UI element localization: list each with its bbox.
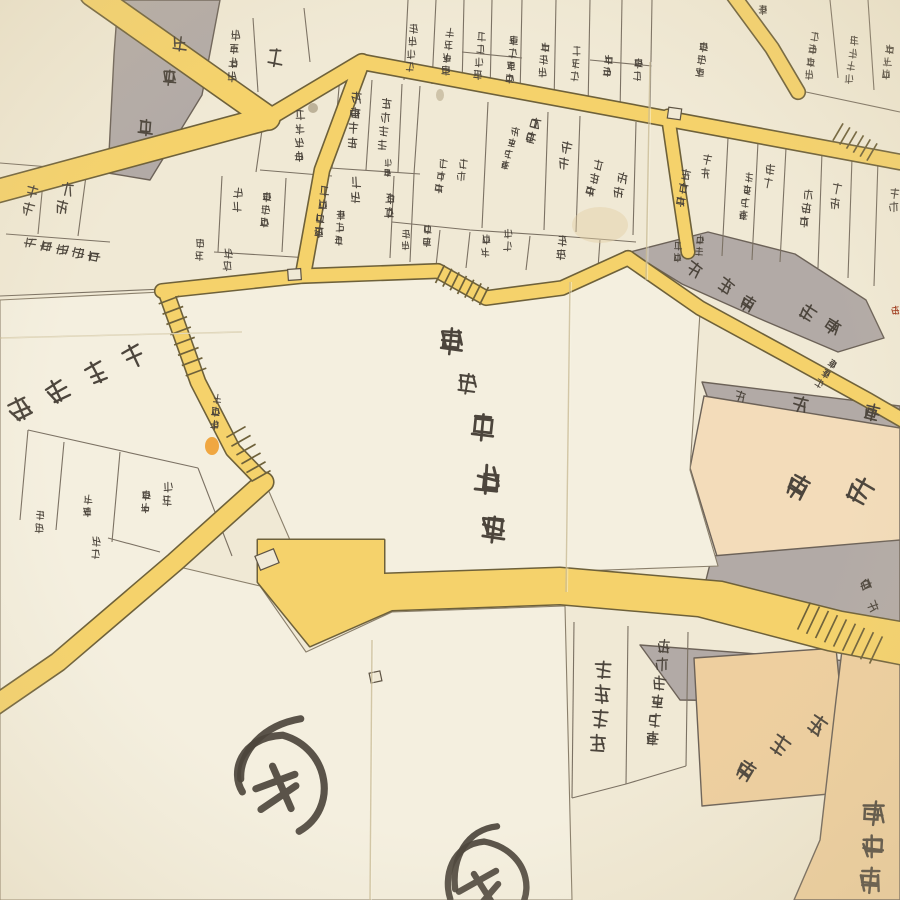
- paper-stain: [436, 89, 444, 101]
- map-viewport: [0, 0, 900, 900]
- paper-stain: [308, 103, 318, 113]
- paper-stain: [572, 207, 628, 243]
- gate-notch: [667, 107, 681, 120]
- gate-notch: [288, 269, 302, 281]
- paper-stain: [205, 437, 219, 455]
- edo-kiriezu-map-canvas[interactable]: [0, 0, 900, 900]
